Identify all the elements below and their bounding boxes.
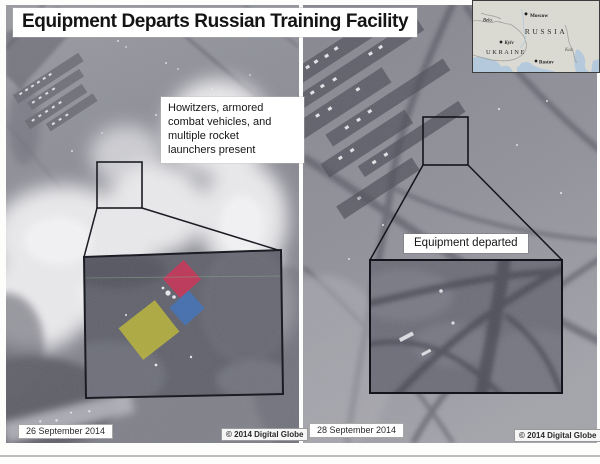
- kyiv-label: Kyiv: [504, 41, 515, 46]
- right-date-label: 28 September 2014: [309, 423, 404, 438]
- ukraine-label: UKRAINE: [486, 49, 526, 56]
- page-title: Equipment Departs Russian Training Facil…: [13, 8, 417, 37]
- left-date-label: 26 September 2014: [18, 424, 113, 439]
- belarus-label: Bela.: [483, 19, 493, 24]
- russia-label: RUSSIA: [525, 27, 568, 36]
- right-copyright-label: © 2014 Digital Globe: [514, 429, 600, 442]
- scan-artifact-line: [0, 455, 600, 457]
- equipment-present-callout: Howitzers, armored combat vehicles, and …: [161, 97, 304, 163]
- briefing-slide: Equipment Departs Russian Training Facil…: [0, 0, 600, 464]
- rostov-label: Rostov: [539, 61, 554, 66]
- left-copyright-label: © 2014 Digital Globe: [221, 428, 308, 441]
- right-zoom-inset: [353, 255, 583, 401]
- locator-map: Moscow RUSSIA UKRAINE Kyiv Rostov Bela. …: [472, 0, 600, 73]
- satellite-photo-before: [6, 5, 299, 443]
- equipment-departed-label: Equipment departed: [404, 234, 528, 253]
- moscow-label: Moscow: [530, 13, 548, 19]
- kazakhstan-label: Kaz.: [564, 48, 574, 53]
